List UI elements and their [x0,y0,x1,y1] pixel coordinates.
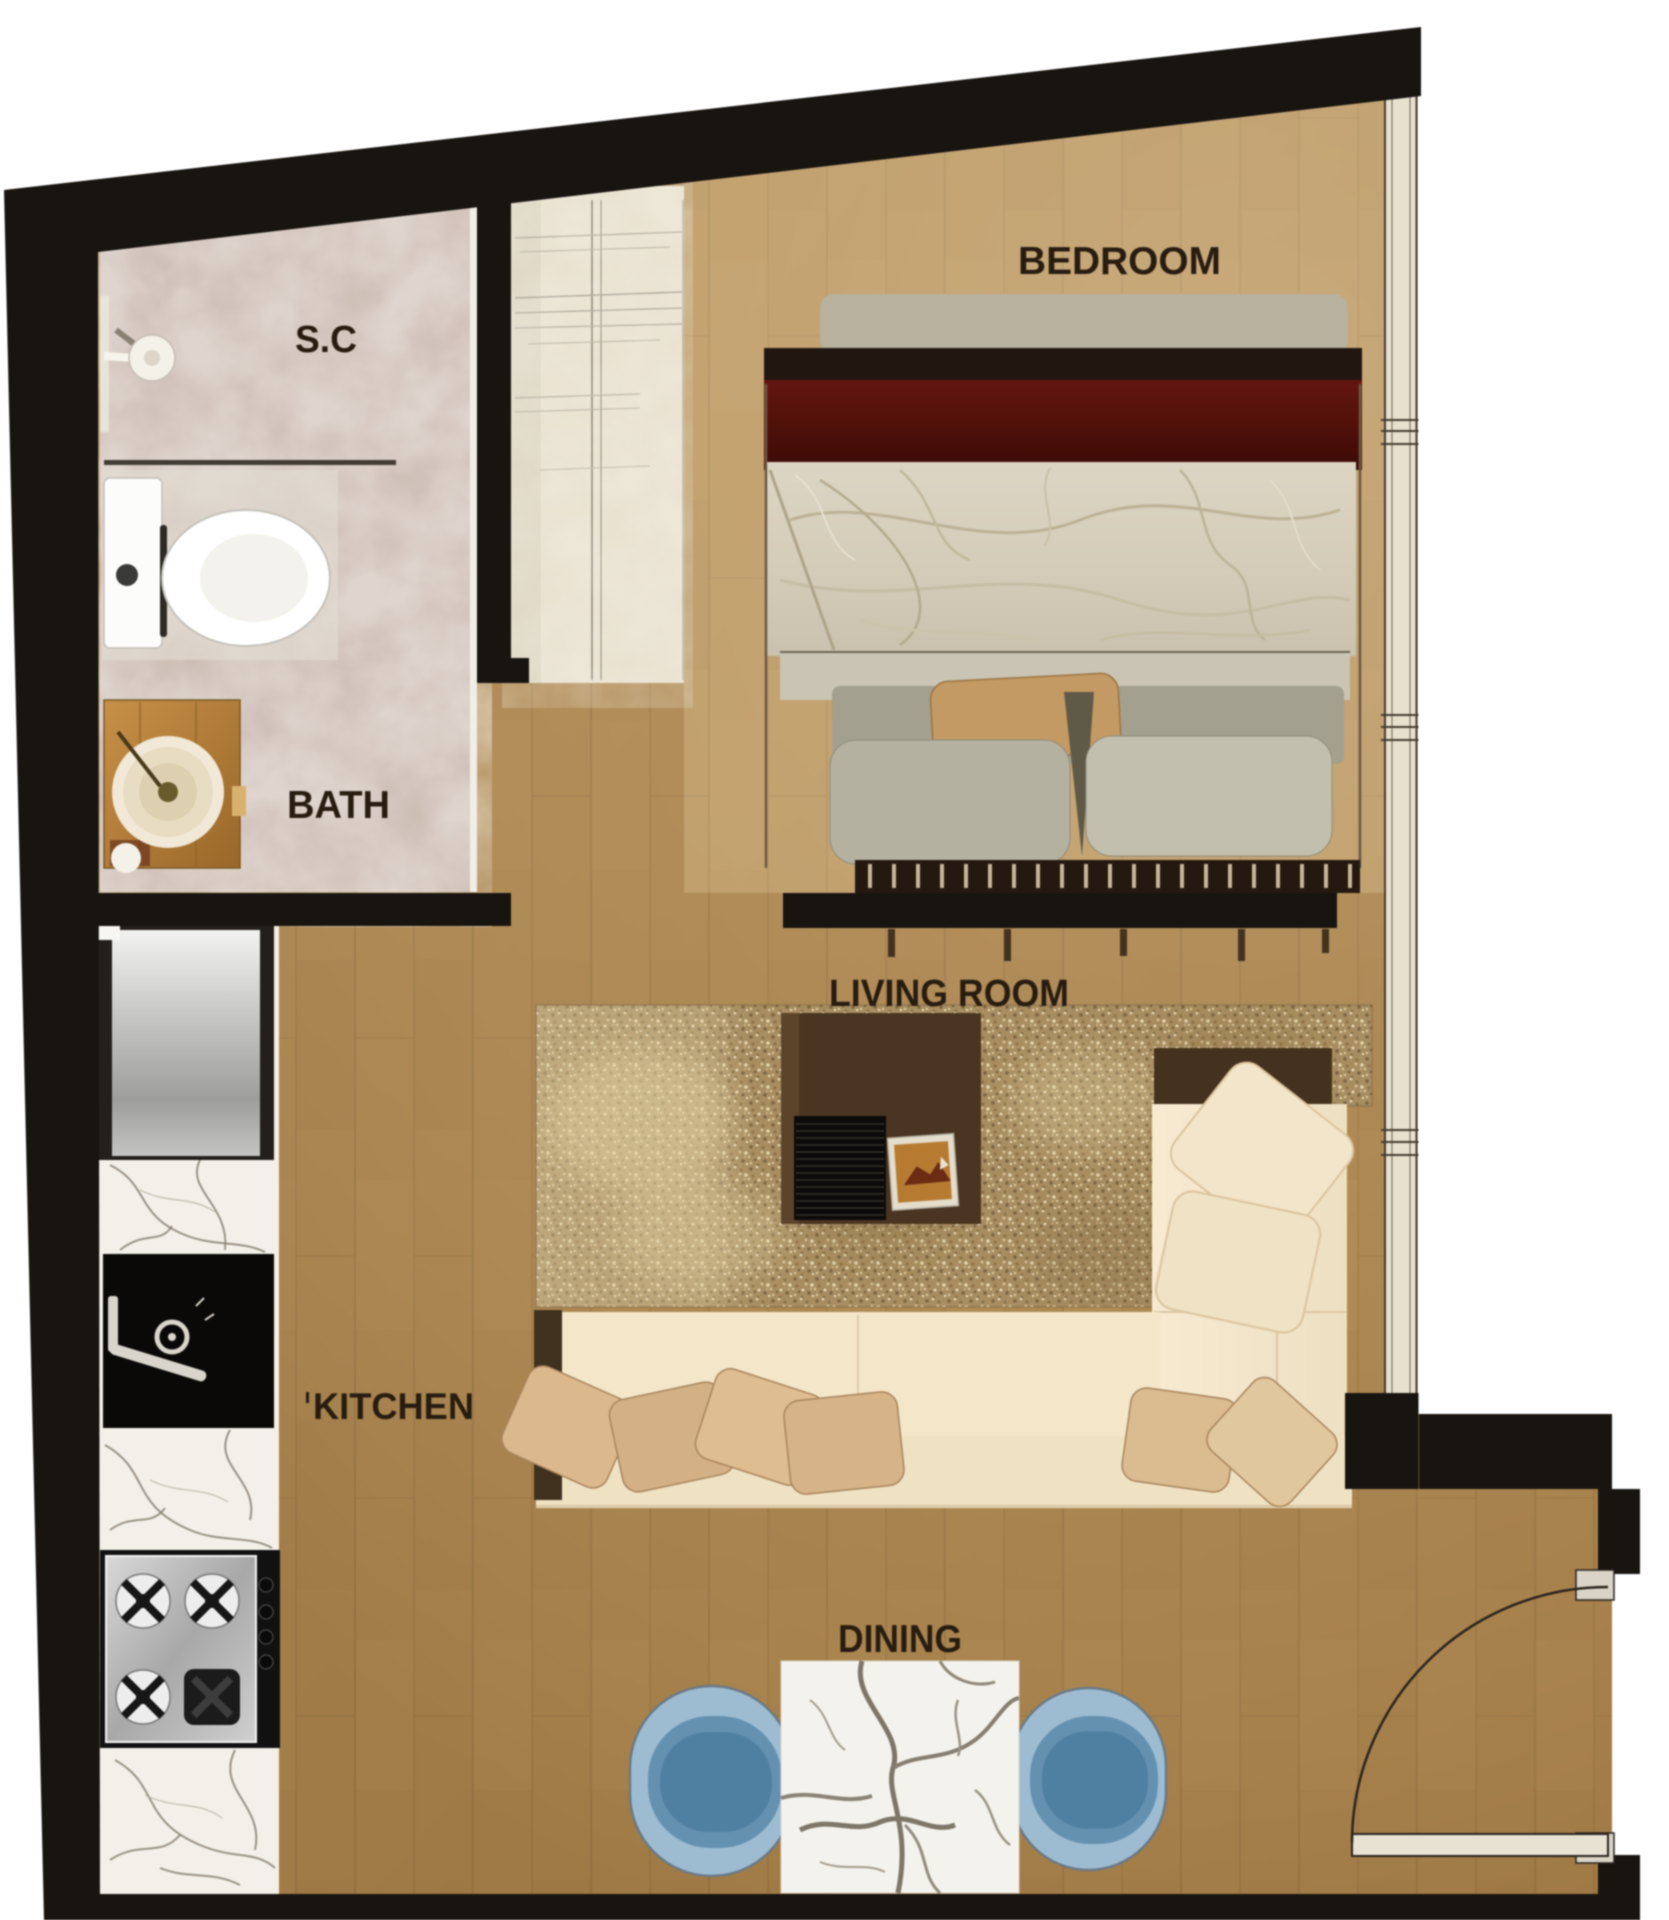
svg-text:DINING: DINING [838,1618,962,1661]
svg-text:BEDROOM: BEDROOM [1018,240,1221,283]
svg-text:BATH: BATH [287,784,390,827]
svg-text:LIVING ROOM: LIVING ROOM [829,973,1069,1015]
svg-text:KITCHEN: KITCHEN [313,1386,474,1427]
svg-text:S.C: S.C [295,319,357,361]
